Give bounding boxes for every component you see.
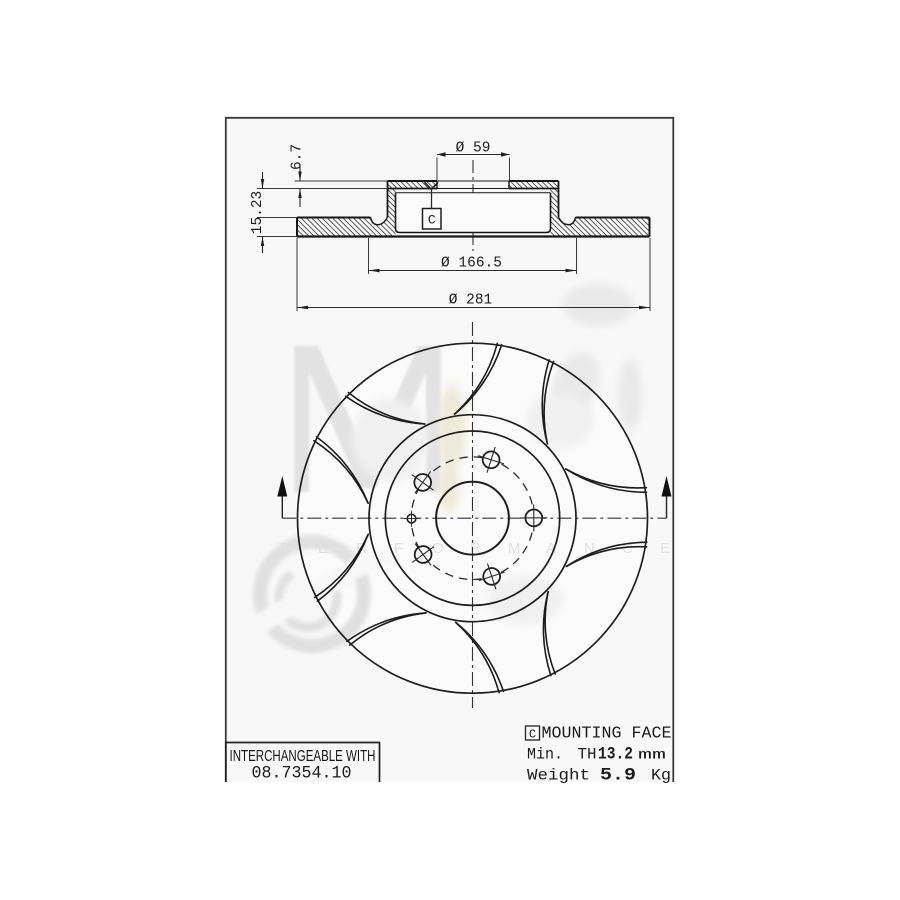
svg-text:E: E <box>660 540 670 557</box>
svg-text:E: E <box>318 540 328 557</box>
svg-text:M: M <box>508 540 521 557</box>
svg-text:C: C <box>428 213 436 228</box>
svg-text:08.7354.10: 08.7354.10 <box>252 764 352 784</box>
svg-text:TH: TH <box>578 746 597 764</box>
svg-text:6.7: 6.7 <box>290 144 306 170</box>
svg-text:P: P <box>280 540 290 557</box>
svg-text:Kg: Kg <box>651 767 671 785</box>
svg-text:Ø 166.5: Ø 166.5 <box>441 256 502 272</box>
svg-text:Weight: Weight <box>527 767 590 785</box>
svg-text:Min.: Min. <box>527 746 563 764</box>
svg-text:O: O <box>432 540 444 557</box>
svg-text:MOUNTING FACE: MOUNTING FACE <box>542 724 672 743</box>
svg-text:F: F <box>394 540 403 557</box>
svg-text:13.2: 13.2 <box>598 745 633 765</box>
svg-text:INTERCHANGEABLE WITH: INTERCHANGEABLE WITH <box>230 748 376 765</box>
svg-text:C: C <box>529 727 536 741</box>
svg-text:15.23: 15.23 <box>250 191 266 235</box>
svg-text:Ø 59: Ø 59 <box>456 141 491 157</box>
svg-text:Ø 281: Ø 281 <box>449 293 493 309</box>
svg-text:5.9: 5.9 <box>600 766 636 786</box>
svg-text:mm: mm <box>638 749 666 764</box>
